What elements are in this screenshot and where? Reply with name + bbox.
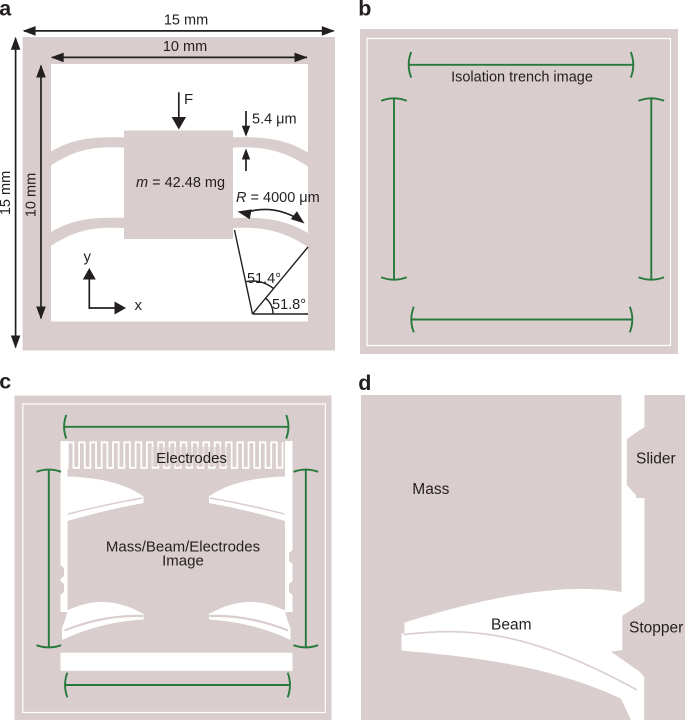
svg-text:10 mm: 10 mm [24,173,40,217]
svg-text:Mass: Mass [412,481,449,498]
svg-text:Beam: Beam [491,616,532,633]
svg-text:a: a [0,0,12,20]
svg-text:m = 42.48 mg: m = 42.48 mg [136,175,225,191]
svg-text:F: F [184,91,193,108]
svg-text:15 mm: 15 mm [164,13,208,29]
svg-text:Stopper: Stopper [629,620,683,637]
svg-text:d: d [358,371,371,395]
svg-text:51.4°: 51.4° [247,271,281,287]
svg-text:Electrodes: Electrodes [156,450,227,467]
svg-text:Isolation trench image: Isolation trench image [451,70,593,86]
svg-text:15 mm: 15 mm [0,171,14,215]
svg-text:y: y [84,249,92,266]
svg-text:10 mm: 10 mm [163,39,207,55]
svg-text:R = 4000 μm: R = 4000 μm [236,190,320,206]
svg-text:c: c [0,369,11,393]
svg-text:51.8°: 51.8° [272,297,306,313]
svg-text:x: x [135,297,143,314]
svg-text:Slider: Slider [636,451,676,468]
svg-text:5.4 μm: 5.4 μm [252,112,297,128]
svg-text:b: b [358,0,371,20]
svg-text:Image: Image [162,553,204,570]
